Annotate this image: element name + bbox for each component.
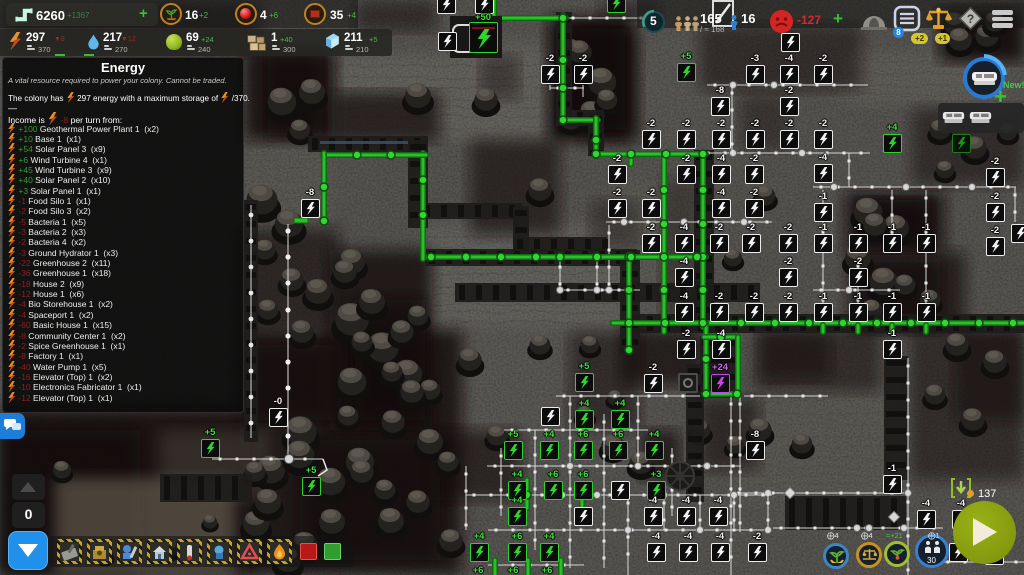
svg-text:?: ? xyxy=(967,12,974,26)
